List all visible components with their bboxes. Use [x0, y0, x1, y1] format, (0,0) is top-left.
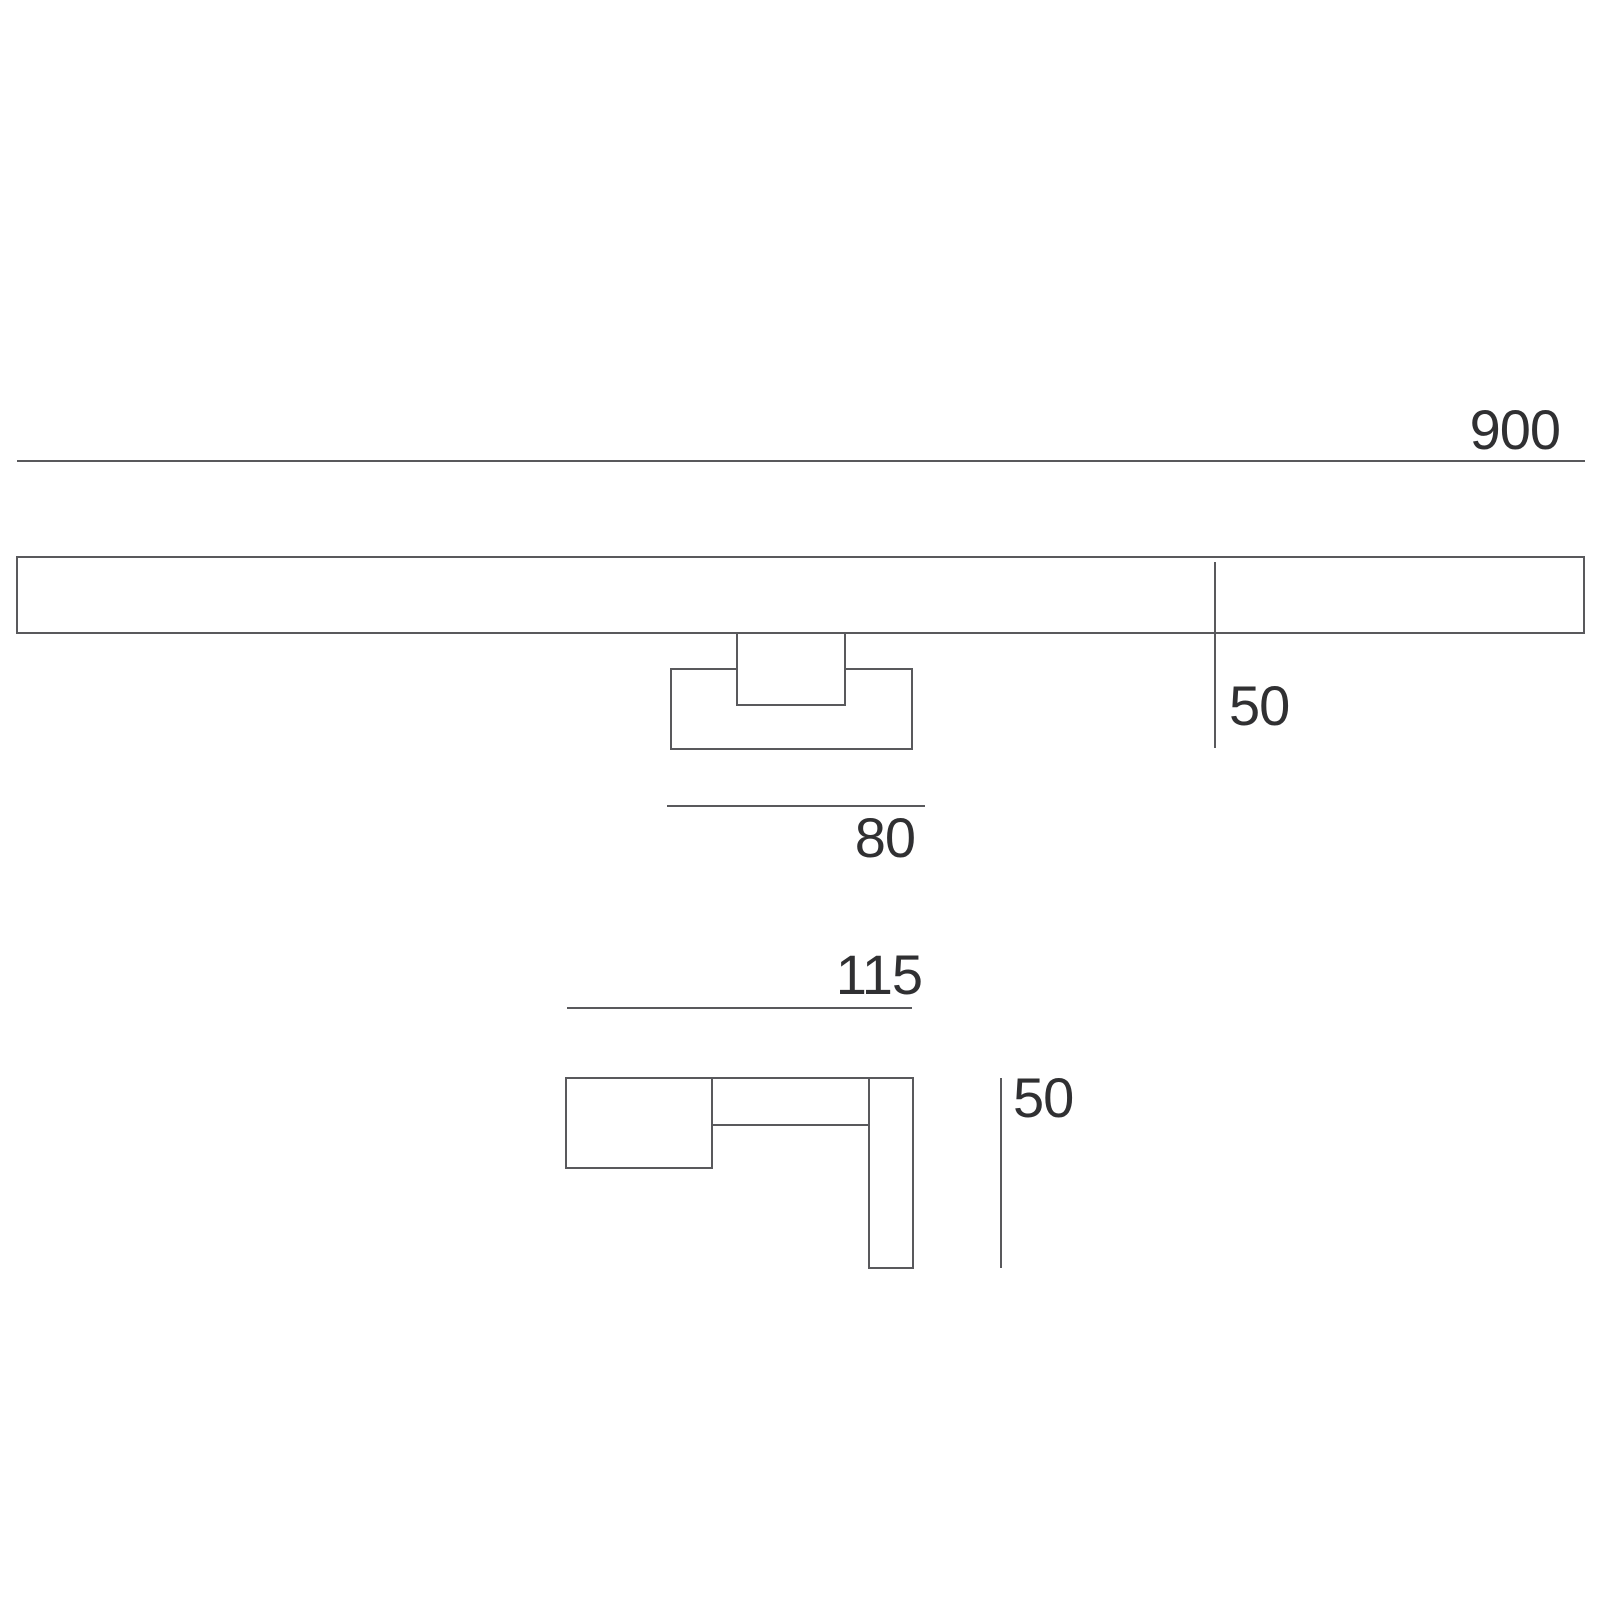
side-view-lamp-head — [565, 1077, 713, 1169]
dimension-label-front-width: 900 — [1400, 402, 1560, 458]
side-view-arm — [711, 1077, 870, 1126]
front-view-mount-stem — [736, 632, 846, 706]
dimension-label-bracket-width: 80 — [765, 810, 915, 866]
dimension-line-front-width — [17, 460, 1585, 462]
drawing-canvas: 900 50 80 115 50 — [0, 0, 1600, 1600]
dimension-label-front-height: 50 — [1229, 678, 1289, 734]
dimension-label-side-height: 50 — [1013, 1070, 1073, 1126]
front-view-light-bar — [16, 556, 1585, 634]
dimension-label-side-depth: 115 — [770, 947, 922, 1003]
dimension-line-side-depth — [567, 1007, 912, 1009]
dimension-line-front-height — [1214, 562, 1216, 748]
side-view-wall-plate — [868, 1077, 914, 1269]
dimension-line-side-height — [1000, 1078, 1002, 1268]
